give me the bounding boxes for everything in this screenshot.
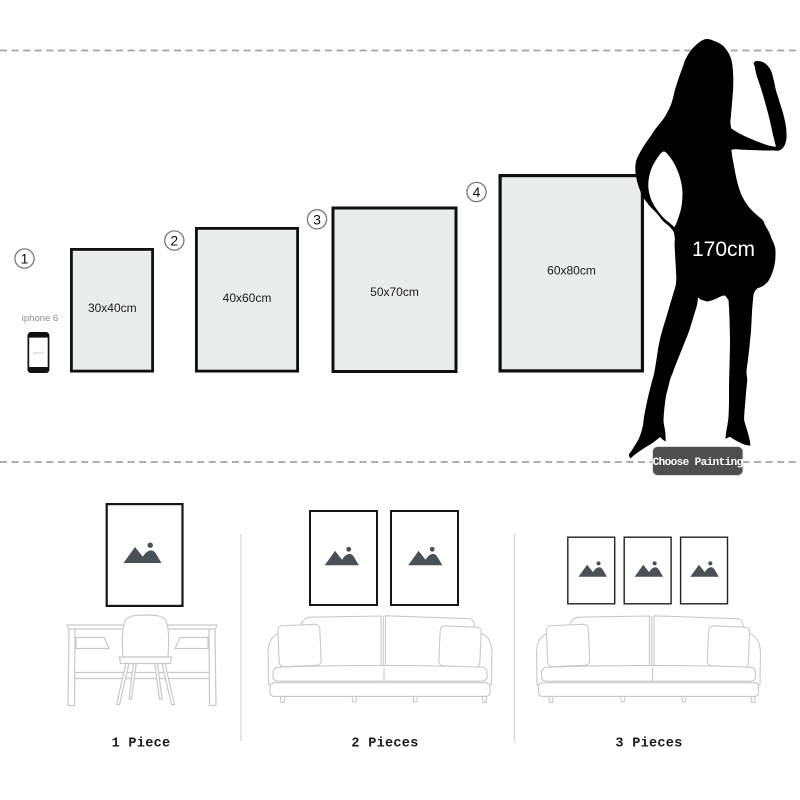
svg-text:30x40cm: 30x40cm [88,301,137,315]
svg-text:40x60cm: 40x60cm [223,291,272,305]
svg-text:3 Pieces: 3 Pieces [615,737,682,752]
svg-text:iphone: iphone [33,351,44,355]
svg-text:2 Pieces: 2 Pieces [351,737,418,752]
svg-text:1 Piece: 1 Piece [112,737,171,752]
svg-text:3: 3 [313,211,321,227]
svg-text:Choose Painting: Choose Painting [653,457,743,469]
svg-text:2: 2 [170,233,178,249]
svg-text:1: 1 [21,251,29,267]
svg-text:60x80cm: 60x80cm [547,264,596,278]
svg-text:4: 4 [473,184,481,200]
svg-text:50x70cm: 50x70cm [370,285,419,299]
svg-text:170cm: 170cm [692,238,755,261]
svg-text:iphone 6: iphone 6 [22,313,58,324]
